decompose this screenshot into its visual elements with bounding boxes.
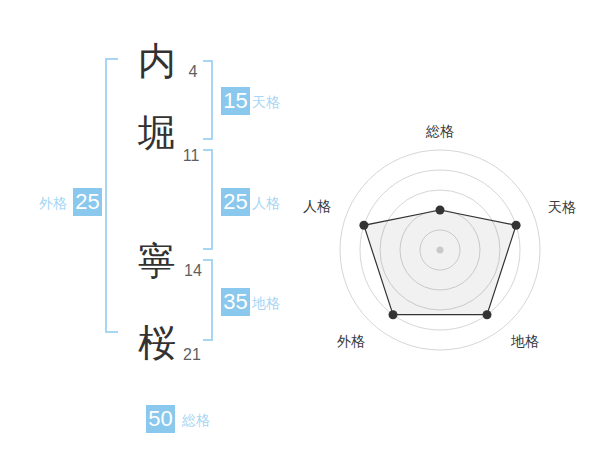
bracket-gaikaku: [105, 58, 118, 333]
radar-axis-label: 天格: [548, 199, 576, 215]
radar-point: [359, 221, 368, 230]
radar-point: [389, 310, 398, 319]
radar-point: [436, 206, 445, 215]
name-character: 寧: [138, 242, 176, 280]
badge-jinkaku-value: 25: [221, 188, 250, 216]
kaku-label-tenkaku: 天格: [252, 95, 280, 109]
name-analysis-page: 内 堀 寧 桜 4 11 14 21 15 天格 25 人格 35 地格 外格 …: [0, 0, 600, 470]
stroke-count: 14: [184, 263, 202, 279]
radar-axis-label: 総格: [425, 123, 454, 139]
name-character: 桜: [138, 324, 176, 362]
name-character: 内: [138, 42, 176, 80]
badge-tenkaku-value: 15: [221, 87, 250, 115]
kaku-label-chikaku: 地格: [252, 296, 280, 310]
kaku-label-soukaku: 総格: [182, 413, 210, 427]
kaku-label-gaikaku: 外格: [39, 196, 67, 210]
radar-point: [483, 310, 492, 319]
bracket-tenkaku: [203, 60, 213, 140]
badge-gaikaku-value: 25: [73, 188, 102, 216]
stroke-count: 21: [183, 347, 201, 363]
stroke-count: 4: [189, 64, 198, 80]
radar-axis-label: 地格: [510, 333, 539, 349]
bracket-chikaku: [203, 259, 213, 341]
badge-soukaku-value: 50: [146, 405, 175, 433]
badge-chikaku-value: 35: [221, 288, 250, 316]
radar-axis-label: 外格: [337, 333, 365, 349]
stroke-count: 11: [183, 148, 200, 164]
name-character: 堀: [138, 114, 176, 152]
kaku-label-jinkaku: 人格: [252, 196, 280, 210]
bracket-jinkaku: [203, 149, 213, 250]
radar-axis-label: 人格: [303, 198, 331, 214]
radar-polygon: [364, 210, 516, 315]
radar-chart: 総格天格地格外格人格: [290, 100, 590, 400]
radar-center-dot: [437, 247, 444, 254]
radar-point: [512, 221, 521, 230]
